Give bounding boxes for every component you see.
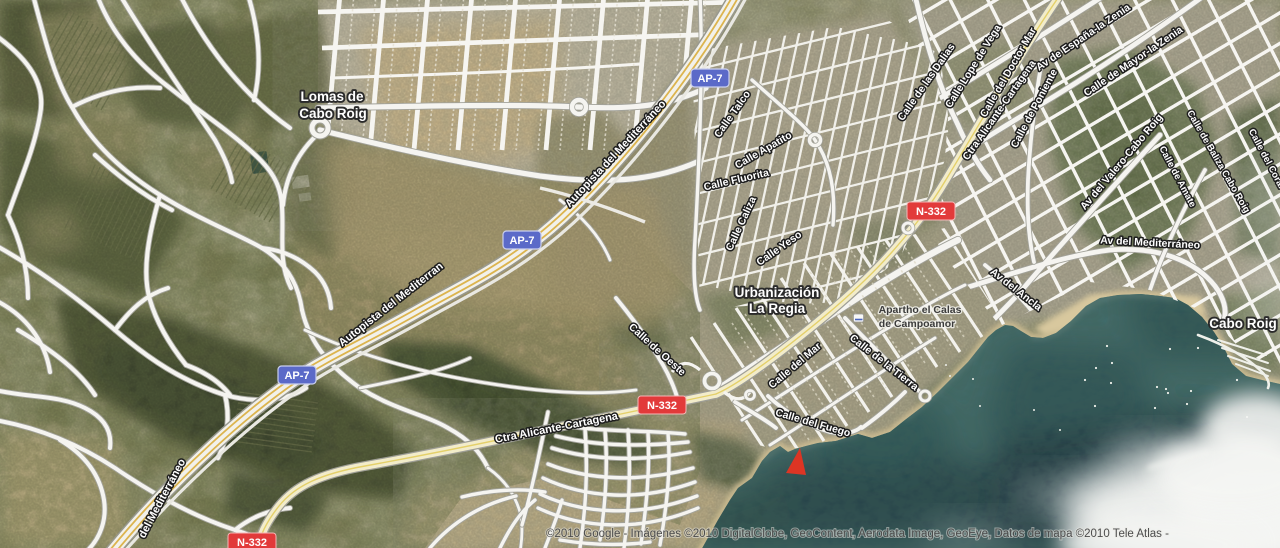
svg-text:Urbanización: Urbanización xyxy=(735,285,820,300)
svg-text:©2010 Google - Imágenes ©2010: ©2010 Google - Imágenes ©2010 DigitalGlo… xyxy=(546,528,1169,540)
svg-text:N-332: N-332 xyxy=(647,400,677,412)
svg-text:de Campoamor: de Campoamor xyxy=(879,318,955,330)
svg-text:Apartho el Calas: Apartho el Calas xyxy=(879,304,962,316)
svg-text:N-332: N-332 xyxy=(916,206,946,218)
svg-text:Lomas de: Lomas de xyxy=(300,89,364,104)
svg-text:La Regia: La Regia xyxy=(749,301,806,316)
svg-text:Cabo Roig: Cabo Roig xyxy=(299,106,367,121)
svg-text:Cabo Roig: Cabo Roig xyxy=(1209,316,1277,331)
svg-text:AP-7: AP-7 xyxy=(509,235,534,247)
svg-text:AP-7: AP-7 xyxy=(284,370,309,382)
svg-text:AP-7: AP-7 xyxy=(697,73,722,85)
svg-text:N-332: N-332 xyxy=(237,537,267,548)
